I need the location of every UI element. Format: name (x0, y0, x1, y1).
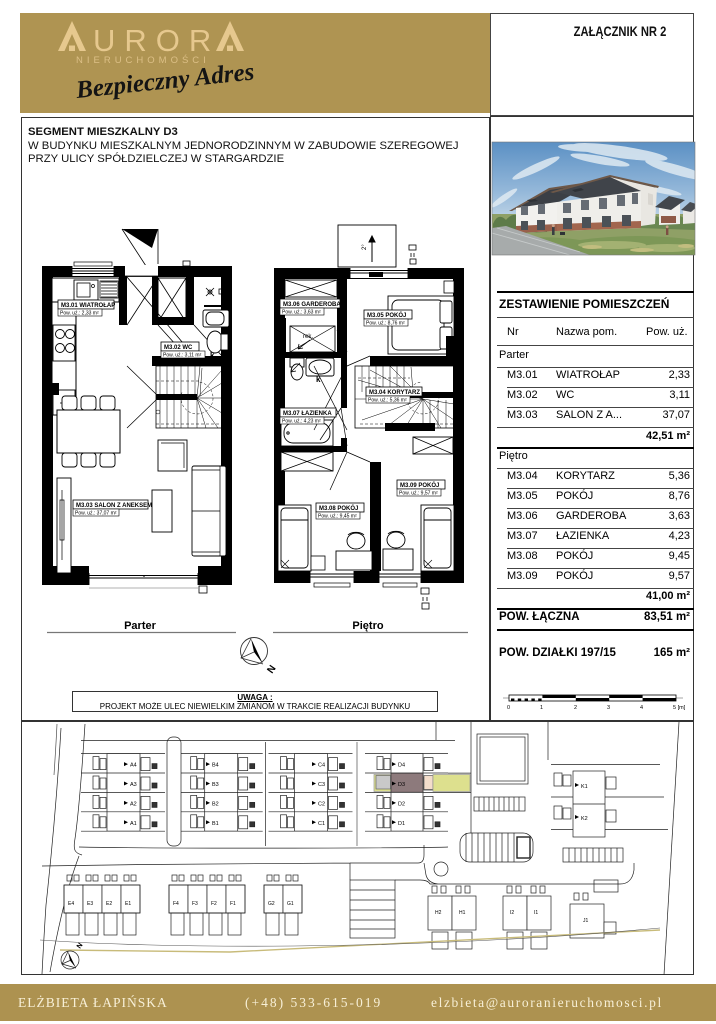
svg-text:B2: B2 (212, 801, 219, 807)
svg-text:E2: E2 (106, 901, 112, 907)
svg-text:Piętro: Piętro (352, 620, 383, 632)
svg-text:Pow. uż.: 4,23 m²: Pow. uż.: 4,23 m² (282, 419, 321, 425)
svg-text:2°: 2° (362, 244, 368, 250)
svg-text:D4: D4 (398, 763, 405, 769)
svg-text:M3.01 WIATROŁAP: M3.01 WIATROŁAP (61, 303, 115, 309)
svg-text:M3.06 GARDEROBA: M3.06 GARDEROBA (283, 302, 341, 308)
svg-text:Pow. uż.: 3,11 m²: Pow. uż.: 3,11 m² (163, 353, 202, 359)
svg-text:I2: I2 (510, 910, 514, 916)
svg-text:F3: F3 (192, 901, 198, 907)
svg-text:3: 3 (607, 705, 610, 711)
svg-text:H2: H2 (435, 910, 442, 916)
svg-text:Pow. uż.: 37,07 m²: Pow. uż.: 37,07 m² (75, 511, 117, 517)
svg-text:N: N (76, 942, 85, 950)
svg-text:A1: A1 (130, 821, 137, 827)
svg-text:C1: C1 (318, 821, 325, 827)
svg-text:B3: B3 (212, 782, 219, 788)
svg-text:C3: C3 (318, 782, 325, 788)
svg-text:F4: F4 (173, 901, 179, 907)
svg-text:I1: I1 (534, 910, 538, 916)
svg-text:A4: A4 (130, 763, 137, 769)
svg-text:F2: F2 (211, 901, 217, 907)
svg-text:N: N (265, 663, 278, 675)
svg-text:Pow. uż.: 2,33 m²: Pow. uż.: 2,33 m² (60, 311, 99, 317)
svg-text:F1: F1 (230, 901, 236, 907)
svg-text:2: 2 (574, 705, 577, 711)
svg-text:G2: G2 (268, 901, 275, 907)
svg-text:D1: D1 (398, 821, 405, 827)
svg-text:B4: B4 (212, 763, 219, 769)
svg-text:1: 1 (540, 705, 543, 711)
svg-text:Pow. uż.: 3,63 m²: Pow. uż.: 3,63 m² (282, 310, 321, 316)
svg-text:M3.03 SALON Z ANEKSEM: M3.03 SALON Z ANEKSEM (76, 503, 152, 509)
svg-text:B1: B1 (212, 821, 219, 827)
svg-text:rek.: rek. (303, 334, 313, 340)
svg-text:Parter: Parter (124, 620, 157, 632)
svg-text:D2: D2 (398, 801, 405, 807)
svg-text:k: k (316, 375, 321, 384)
svg-text:0: 0 (507, 705, 510, 711)
svg-text:5 [m]: 5 [m] (673, 705, 686, 711)
svg-text:Pow. uż.: 8,76 m²: Pow. uż.: 8,76 m² (366, 321, 405, 327)
svg-text:A3: A3 (130, 782, 137, 788)
svg-text:A2: A2 (130, 801, 137, 807)
svg-text:C2: C2 (318, 801, 325, 807)
svg-text:E4: E4 (68, 901, 74, 907)
svg-text:E3: E3 (87, 901, 93, 907)
svg-text:Pow. uż.: 5,36 m²: Pow. uż.: 5,36 m² (368, 398, 407, 404)
svg-text:M3.07 ŁAZIENKA: M3.07 ŁAZIENKA (283, 411, 332, 417)
svg-text:J1: J1 (583, 918, 589, 924)
svg-text:M3.05 POKÓJ: M3.05 POKÓJ (367, 311, 406, 319)
svg-text:Pow. uż.: 9,45 m²: Pow. uż.: 9,45 m² (318, 514, 357, 520)
svg-text:H1: H1 (459, 910, 466, 916)
svg-text:G1: G1 (287, 901, 294, 907)
svg-text:4: 4 (640, 705, 643, 711)
svg-text:Pow. uż.: 9,57 m²: Pow. uż.: 9,57 m² (399, 491, 438, 497)
svg-text:D3: D3 (398, 782, 405, 788)
svg-text:M3.04 KORYTARZ: M3.04 KORYTARZ (369, 390, 420, 396)
svg-text:E1: E1 (125, 901, 131, 907)
svg-text:K1: K1 (581, 784, 588, 790)
svg-text:C4: C4 (318, 763, 325, 769)
svg-text:K2: K2 (581, 816, 588, 822)
svg-text:M3.08 POKÓJ: M3.08 POKÓJ (319, 504, 358, 512)
svg-text:k: k (210, 351, 215, 360)
svg-text:M3.09 POKÓJ: M3.09 POKÓJ (400, 481, 439, 489)
svg-text:M3.02 WC: M3.02 WC (164, 345, 193, 351)
